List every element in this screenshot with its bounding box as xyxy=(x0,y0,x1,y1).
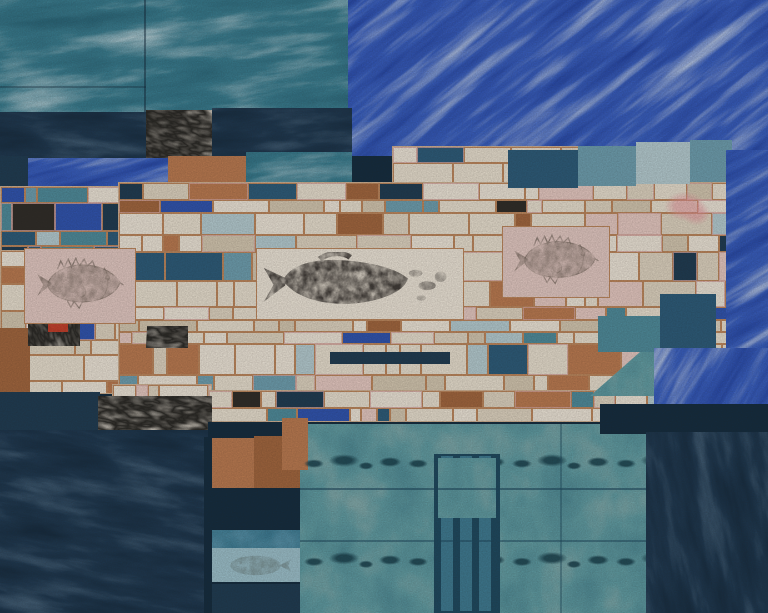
seam-top-left-h xyxy=(0,86,146,88)
patch-cell xyxy=(439,200,496,213)
patch-cell xyxy=(204,332,227,344)
patch-cell xyxy=(248,183,297,200)
patch-cell xyxy=(473,235,503,252)
patch-cell xyxy=(523,332,557,344)
copper-accent-left xyxy=(0,328,30,394)
patch-cell xyxy=(528,344,568,375)
patch-cell xyxy=(337,213,383,235)
patch-cell xyxy=(532,408,592,422)
teal-piece-right-b xyxy=(660,294,716,350)
right-fish-print-ink xyxy=(514,235,598,283)
patch-cell xyxy=(612,200,651,213)
patch-cell xyxy=(361,408,377,422)
patch-cell xyxy=(153,344,167,375)
patch-cell xyxy=(201,213,255,235)
patchwork-left-blue-bits xyxy=(0,186,120,252)
patch-cell xyxy=(350,408,361,422)
right-fish-print xyxy=(511,233,601,289)
patch-cell xyxy=(515,391,571,408)
patch-cell xyxy=(297,183,346,200)
patch-cell xyxy=(254,320,279,332)
patch-cell xyxy=(275,344,295,375)
marbled-navy-bottom-left-texture xyxy=(0,430,212,613)
patch-cell xyxy=(346,183,379,200)
patch-cell xyxy=(213,200,269,213)
patch-cell xyxy=(510,320,560,332)
patch-cell xyxy=(406,408,453,422)
patch-cell xyxy=(639,252,673,281)
patch-cell xyxy=(164,307,209,320)
center-fish-print xyxy=(262,252,454,314)
bw-accent-mid-texture xyxy=(126,326,188,348)
seam-top-left-v xyxy=(144,0,146,112)
patch-cell xyxy=(385,200,423,213)
blue-patch-column-texture xyxy=(212,490,300,548)
patch-cell xyxy=(362,200,385,213)
patch-cell xyxy=(189,183,248,200)
patch-cell xyxy=(467,344,488,375)
teal-strip-upper xyxy=(246,152,352,186)
patch-cell xyxy=(476,307,523,320)
patch-cell xyxy=(119,183,143,200)
teal-patch-top-a xyxy=(508,150,578,188)
patch-cell xyxy=(477,408,532,422)
patch-cell xyxy=(209,391,232,408)
patch-cell xyxy=(434,332,468,344)
patch-cell xyxy=(1,251,25,267)
copper-patch-a xyxy=(212,438,254,488)
patch-cell xyxy=(423,183,479,200)
patch-cell xyxy=(617,235,662,252)
patch-cell xyxy=(232,391,261,408)
marbled-cobalt-top-right xyxy=(348,0,768,156)
patch-cell xyxy=(12,203,55,231)
patch-cell xyxy=(453,408,477,422)
column-seam xyxy=(204,437,212,613)
patch-cell xyxy=(209,408,267,422)
patch-cell xyxy=(88,187,120,203)
teal-patch-top-b xyxy=(578,146,636,186)
patch-cell xyxy=(37,187,88,203)
patch-cell xyxy=(25,355,84,381)
patch-cell xyxy=(485,332,523,344)
flatfish-print-ink xyxy=(230,556,291,576)
patch-cell xyxy=(1,231,36,246)
patch-cell xyxy=(324,200,340,213)
patch-cell xyxy=(712,213,727,235)
patch-cell xyxy=(383,213,409,235)
teal-patch-top-c xyxy=(636,142,690,184)
marbled-navy-bottom-right-texture xyxy=(646,432,768,613)
patch-cell xyxy=(377,408,390,422)
texture-rect xyxy=(146,110,212,158)
patch-cell xyxy=(142,235,163,252)
patch-cell xyxy=(557,332,574,344)
texture-rect xyxy=(179,326,188,348)
patch-cell xyxy=(423,200,439,213)
patch-cell xyxy=(227,332,284,344)
field-seam-h2 xyxy=(300,540,658,542)
artwork-canvas xyxy=(0,0,768,613)
patch-cell xyxy=(55,203,102,231)
patch-cell xyxy=(468,332,485,344)
patch-cell xyxy=(179,235,202,252)
cobalt-marble-patch-right-texture xyxy=(654,348,768,406)
patch-cell xyxy=(119,213,163,235)
patch-cell xyxy=(324,391,370,408)
patch-cell xyxy=(197,320,254,332)
patch-cell xyxy=(91,340,120,355)
patch-cell xyxy=(304,213,337,235)
patch-cell xyxy=(119,200,160,213)
patch-cell xyxy=(390,408,406,422)
patch-cell xyxy=(269,200,324,213)
patch-cell xyxy=(167,344,199,375)
texture-rect xyxy=(348,0,768,156)
center-fish-print-ink xyxy=(264,254,446,304)
patch-cell xyxy=(342,332,391,344)
patch-cell xyxy=(295,320,353,332)
bw-accent-mid xyxy=(126,326,188,348)
navy-patch-column xyxy=(212,584,300,613)
patch-cell xyxy=(340,200,362,213)
field-seam-h xyxy=(300,488,658,490)
patch-cell xyxy=(199,344,235,375)
navy-bit-left xyxy=(0,156,28,188)
patch-cell xyxy=(464,147,511,163)
blue-patch-column xyxy=(212,490,300,548)
patch-cell xyxy=(571,391,594,408)
patch-cell xyxy=(488,344,528,375)
patch-cell xyxy=(697,252,719,281)
navy-band-right xyxy=(600,404,768,434)
texture-rect xyxy=(246,152,352,186)
patch-cell xyxy=(417,147,464,163)
patch-cell xyxy=(276,391,324,408)
patch-cell xyxy=(202,235,255,252)
patch-cell xyxy=(353,320,367,332)
marbled-navy-bottom-left xyxy=(0,430,212,613)
patch-cell xyxy=(1,203,12,231)
patch-cell xyxy=(223,252,252,281)
patch-cell xyxy=(209,307,233,320)
patch-cell xyxy=(217,281,234,307)
cobalt-marble-patch-right xyxy=(654,348,768,406)
patch-cell xyxy=(379,183,423,200)
patch-cell xyxy=(160,200,213,213)
patch-cell xyxy=(483,391,515,408)
flatfish-print xyxy=(220,552,294,579)
field-seam-v xyxy=(560,424,562,613)
patch-cell xyxy=(163,213,201,235)
pink-blob xyxy=(664,190,710,226)
patch-cell xyxy=(261,391,276,408)
patch-cell xyxy=(36,231,60,246)
navy-strip-left-texture xyxy=(0,112,148,162)
patch-cell xyxy=(284,332,342,344)
patch-cell xyxy=(133,307,164,320)
left-fish-print-ink xyxy=(37,258,123,308)
patch-cell xyxy=(688,235,719,252)
patch-cell xyxy=(401,320,450,332)
marbled-navy-bottom-right xyxy=(646,432,768,613)
patch-cell xyxy=(25,187,37,203)
patch-cell xyxy=(391,332,434,344)
texture-rect xyxy=(0,430,212,613)
red-mark xyxy=(48,324,68,332)
patch-cell xyxy=(119,344,153,375)
patch-cell xyxy=(235,344,275,375)
patch-cell xyxy=(1,187,25,203)
patch-cell xyxy=(393,147,417,163)
texture-rect xyxy=(646,432,768,613)
patch-cell xyxy=(143,183,189,200)
patch-cell xyxy=(295,344,315,375)
patch-cell xyxy=(177,281,217,307)
patch-cell xyxy=(542,200,585,213)
patch-cell xyxy=(523,307,575,320)
left-fish-print xyxy=(34,256,126,314)
patch-cell xyxy=(450,320,510,332)
patch-cell xyxy=(279,320,295,332)
patch-cell xyxy=(440,391,483,408)
navy-strip-left xyxy=(0,112,148,162)
patch-cell xyxy=(662,235,688,252)
patch-cell xyxy=(367,320,401,332)
patch-cell xyxy=(370,391,422,408)
patch-cell xyxy=(409,213,469,235)
patch-cell xyxy=(60,231,107,246)
patch-cell xyxy=(84,355,120,381)
teal-piece-right-a xyxy=(598,316,660,352)
patch-cell xyxy=(496,200,527,213)
patch-cell xyxy=(255,213,304,235)
patch-cell xyxy=(673,252,697,281)
patch-cell xyxy=(422,391,440,408)
patch-cell xyxy=(527,200,542,213)
navy-accent-mid xyxy=(330,352,450,364)
teal-strip-upper-texture xyxy=(246,152,352,186)
texture-rect xyxy=(654,348,768,406)
patch-cell xyxy=(585,200,612,213)
bw-textured-square xyxy=(146,110,212,158)
marbled-cobalt-top-right-texture xyxy=(348,0,768,156)
texture-rect xyxy=(0,112,148,162)
patch-cell xyxy=(163,235,179,252)
bw-textured-square-texture xyxy=(146,110,212,158)
patch-cell xyxy=(618,213,661,235)
patch-cell xyxy=(165,252,223,281)
